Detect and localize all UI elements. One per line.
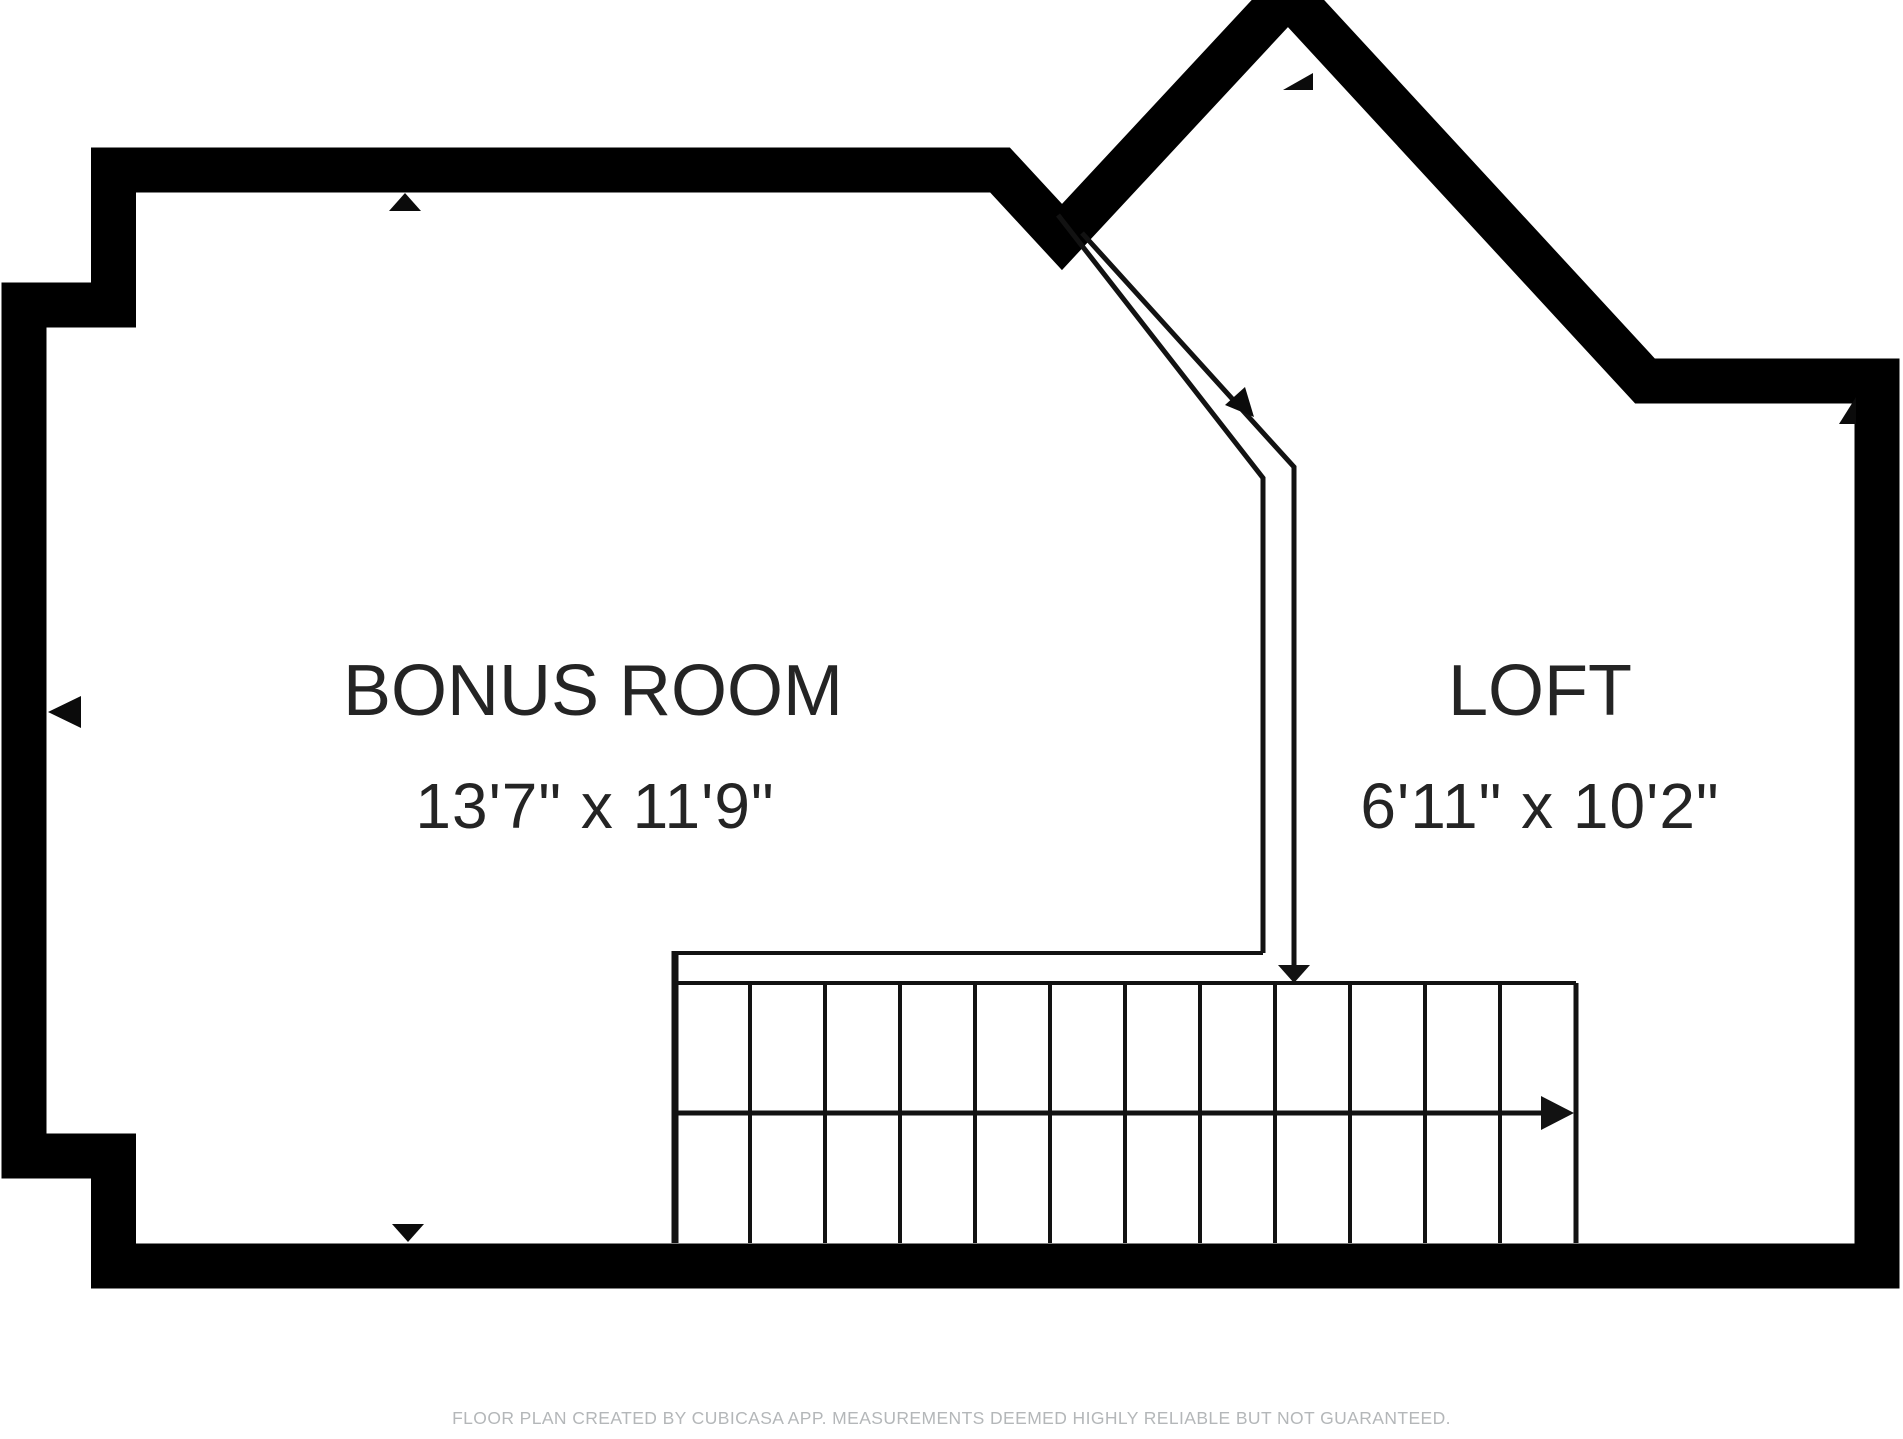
marker-bottom-wall (392, 1224, 424, 1242)
bonus-room-dimensions: 13'7" x 11'9" (415, 774, 774, 838)
stair-direction-arrow-head (1541, 1096, 1574, 1130)
marker-railing (1225, 387, 1254, 417)
loft-label: LOFT (1448, 655, 1632, 727)
floor-plan-page: BONUS ROOM 13'7" x 11'9" LOFT 6'11" x 10… (0, 0, 1903, 1439)
marker-peak (1283, 73, 1313, 90)
exterior-walls (24, 0, 1877, 1266)
railing-outer-line (1058, 215, 1263, 953)
wall-outline (24, 0, 1877, 1266)
bonus-room-label: BONUS ROOM (343, 655, 843, 727)
loft-railing (1058, 215, 1310, 983)
railing-down-arrow-head (1278, 965, 1310, 983)
footer-disclaimer: FLOOR PLAN CREATED BY CUBICASA APP. MEAS… (0, 1408, 1903, 1429)
staircase (675, 951, 1576, 1243)
marker-left-wall (48, 696, 81, 728)
marker-top-wall (389, 193, 421, 211)
loft-dimensions: 6'11" x 10'2" (1360, 774, 1719, 838)
